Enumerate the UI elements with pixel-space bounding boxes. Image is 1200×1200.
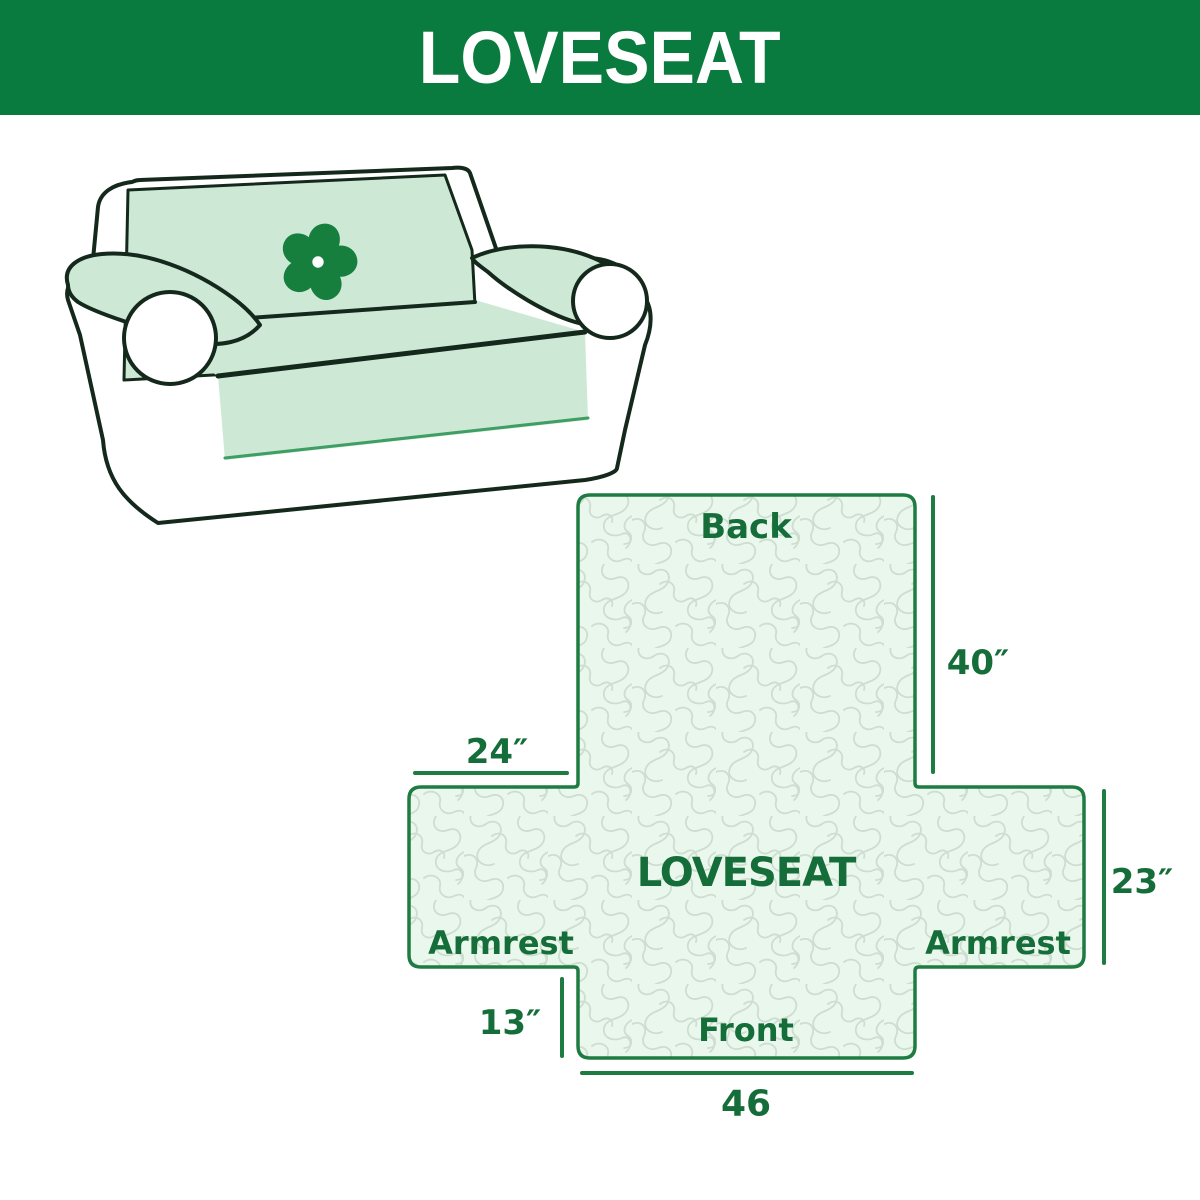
header-banner: LOVESEAT (0, 0, 1200, 115)
dim-label-armrest-height: 23″ (1111, 862, 1174, 902)
dim-label-front-drop: 13″ (479, 1003, 542, 1043)
right-arm-front (573, 264, 647, 338)
cover-quilt-pattern (409, 495, 1084, 1058)
area-label-center: LOVESEAT (637, 850, 857, 896)
dim-label-armrest-width: 24″ (466, 732, 529, 772)
dimension-diagram-svg: Back LOVESEAT Armrest Armrest Front 24″ … (380, 480, 1200, 1170)
dim-label-back-height: 40″ (947, 643, 1010, 683)
area-label-back: Back (700, 507, 793, 547)
dim-label-front-width: 46 (721, 1084, 771, 1125)
area-label-front: Front (698, 1011, 794, 1049)
page-title: LOVESEAT (419, 21, 781, 95)
area-label-armrest-right: Armrest (925, 924, 1071, 962)
cover-dimension-diagram: Back LOVESEAT Armrest Armrest Front 24″ … (380, 480, 1200, 1170)
area-label-armrest-left: Armrest (428, 924, 574, 962)
left-arm-front (124, 292, 216, 384)
